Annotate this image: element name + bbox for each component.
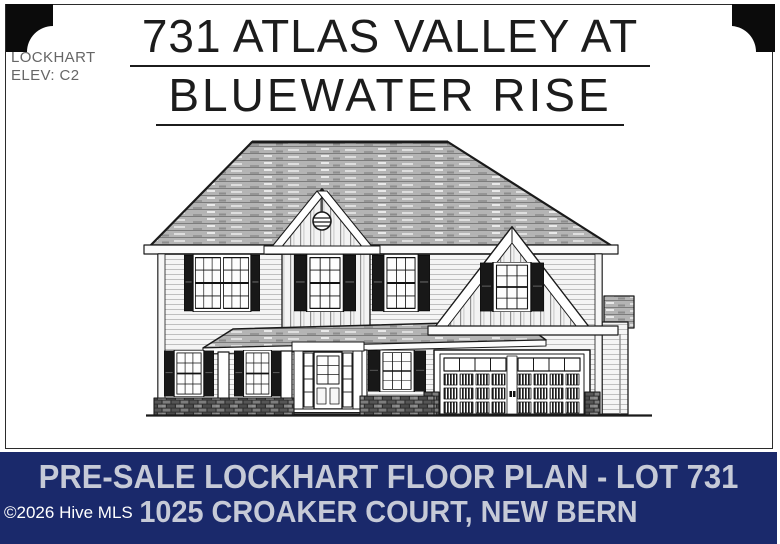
main-roof bbox=[144, 142, 618, 254]
window-upper-right bbox=[372, 254, 430, 312]
garage-door bbox=[434, 350, 590, 414]
banner-plan-line: PRE-SALE LOCKHART FLOOR PLAN - LOT 731 bbox=[23, 460, 753, 494]
window-upper-left bbox=[184, 254, 260, 312]
window-lower-porch bbox=[234, 350, 281, 397]
mls-banner: PRE-SALE LOCKHART FLOOR PLAN - LOT 731 1… bbox=[0, 452, 777, 544]
house-group bbox=[144, 142, 652, 416]
brick-skirt bbox=[360, 396, 434, 415]
side-wing bbox=[602, 296, 634, 414]
front-door bbox=[288, 342, 368, 413]
window-lower-left bbox=[164, 350, 214, 397]
mls-watermark: ©2026 Hive MLS bbox=[4, 503, 133, 523]
brick-skirt bbox=[154, 398, 294, 416]
window-garage-gable bbox=[480, 262, 544, 312]
brick-pier bbox=[585, 392, 600, 415]
banner-address-line: 1025 CROAKER COURT, NEW BERN bbox=[27, 496, 750, 528]
window-lower-right bbox=[368, 350, 426, 392]
window-gable-center bbox=[294, 254, 356, 312]
